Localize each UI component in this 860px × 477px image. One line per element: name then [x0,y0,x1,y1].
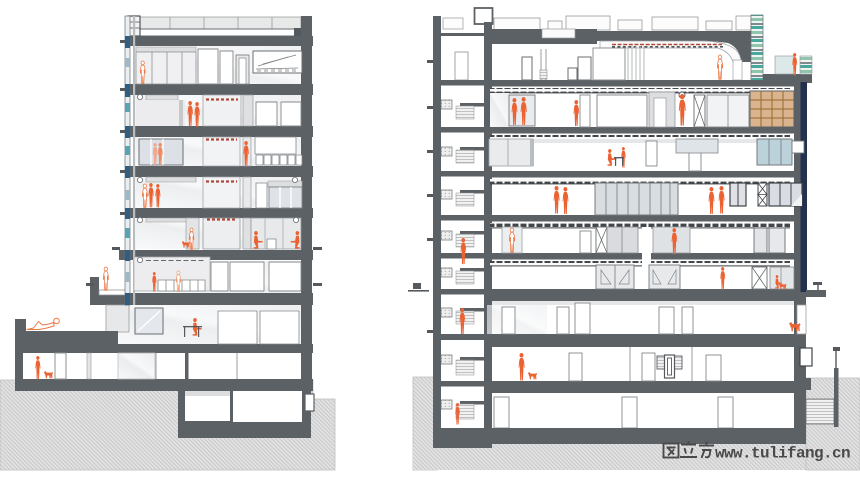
svg-text:www.tulifang.cn: www.tulifang.cn [715,445,850,463]
